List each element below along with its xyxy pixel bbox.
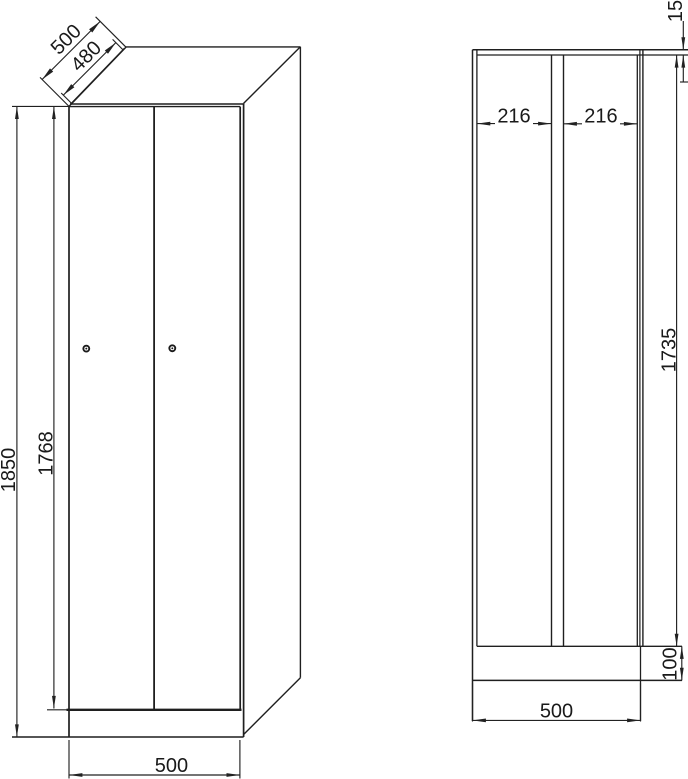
svg-text:500: 500 bbox=[155, 755, 188, 777]
svg-text:1850: 1850 bbox=[0, 448, 20, 493]
svg-text:1768: 1768 bbox=[35, 431, 57, 476]
svg-text:100: 100 bbox=[660, 647, 682, 680]
svg-text:216: 216 bbox=[584, 106, 617, 128]
svg-text:15: 15 bbox=[665, 0, 687, 22]
svg-text:1735: 1735 bbox=[658, 328, 680, 373]
svg-text:500: 500 bbox=[540, 701, 573, 723]
svg-text:216: 216 bbox=[497, 106, 530, 128]
